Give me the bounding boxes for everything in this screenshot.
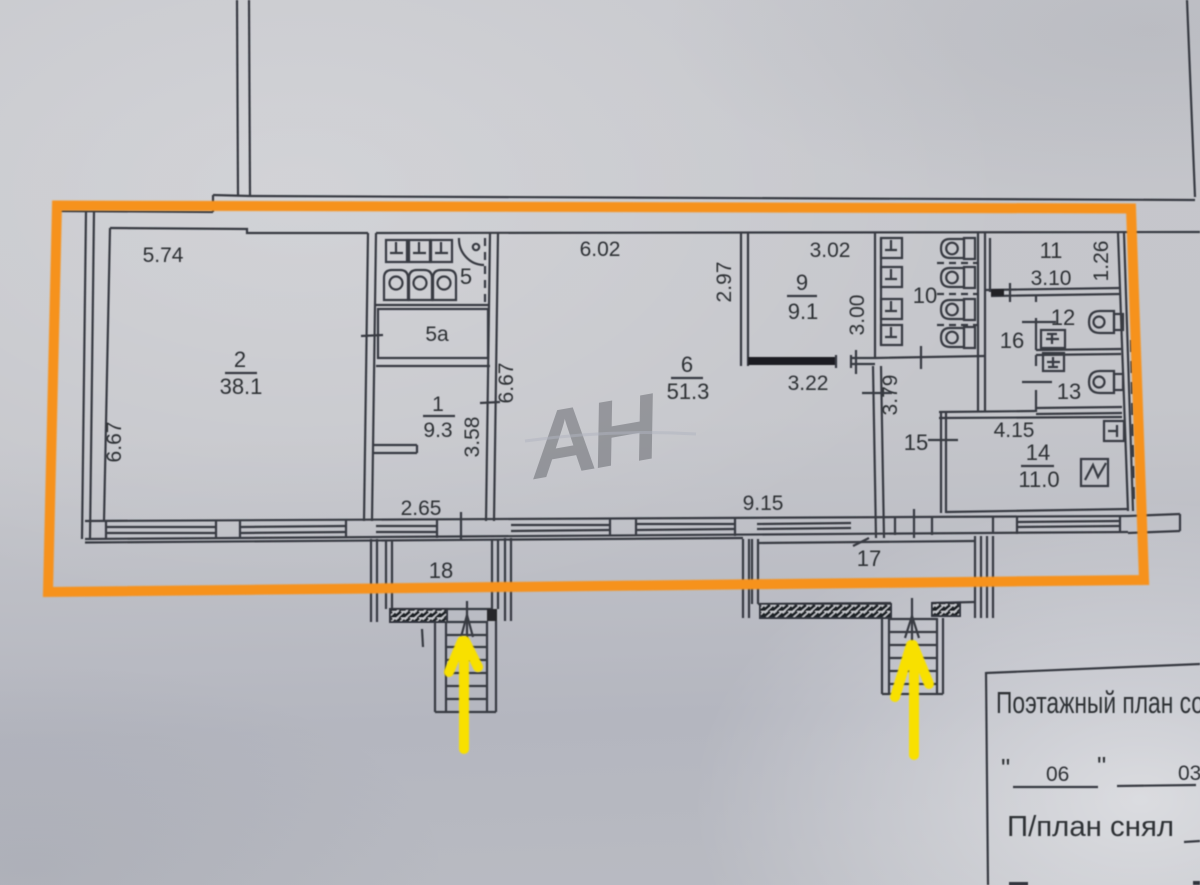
svg-text:12: 12 — [1051, 305, 1075, 330]
svg-text:3.10: 3.10 — [1031, 267, 1072, 290]
svg-text:АН: АН — [518, 374, 667, 500]
svg-text:14: 14 — [1026, 440, 1050, 465]
svg-text:9.3: 9.3 — [423, 419, 452, 442]
svg-text:6.67: 6.67 — [103, 422, 126, 463]
svg-text:2: 2 — [234, 347, 246, 372]
svg-text:1.26: 1.26 — [1090, 241, 1113, 282]
svg-text:6.67: 6.67 — [495, 363, 518, 404]
svg-text:2.97: 2.97 — [713, 262, 736, 303]
svg-text:10: 10 — [913, 283, 937, 308]
svg-text:17: 17 — [857, 546, 881, 571]
svg-text:51.3: 51.3 — [667, 379, 710, 404]
svg-text:3.58: 3.58 — [461, 417, 484, 458]
svg-text:6.02: 6.02 — [580, 238, 621, 261]
svg-text:П/план снял: П/план снял — [1007, 811, 1174, 843]
svg-text:1: 1 — [432, 393, 444, 416]
svg-text:16: 16 — [1000, 328, 1024, 353]
svg-text:11.0: 11.0 — [1018, 467, 1059, 492]
svg-text:9: 9 — [796, 270, 808, 295]
svg-text:2.65: 2.65 — [401, 497, 442, 520]
svg-text:5.74: 5.74 — [143, 244, 184, 267]
svg-text:3.00: 3.00 — [846, 295, 869, 336]
svg-text:18: 18 — [429, 558, 453, 583]
svg-text:9.15: 9.15 — [743, 492, 784, 515]
svg-text:3.22: 3.22 — [788, 372, 829, 395]
svg-text:6: 6 — [681, 352, 693, 377]
svg-text:11: 11 — [1040, 238, 1063, 263]
svg-text:": " — [1097, 751, 1106, 781]
svg-text:3.02: 3.02 — [810, 239, 851, 262]
svg-text:3.79: 3.79 — [879, 375, 902, 416]
svg-text:4.15: 4.15 — [994, 419, 1035, 442]
svg-text:5a: 5a — [425, 323, 449, 346]
svg-text:9.1: 9.1 — [788, 299, 819, 324]
svg-text:13: 13 — [1057, 379, 1081, 404]
svg-text:15: 15 — [904, 430, 928, 455]
svg-text:": " — [1001, 753, 1010, 783]
svg-text:03: 03 — [1178, 762, 1200, 785]
svg-text:5: 5 — [460, 264, 472, 289]
svg-text:Поэтажный план со: Поэтажный план со — [996, 685, 1200, 720]
svg-text:06: 06 — [1046, 763, 1069, 786]
svg-text:38.1: 38.1 — [220, 374, 263, 399]
